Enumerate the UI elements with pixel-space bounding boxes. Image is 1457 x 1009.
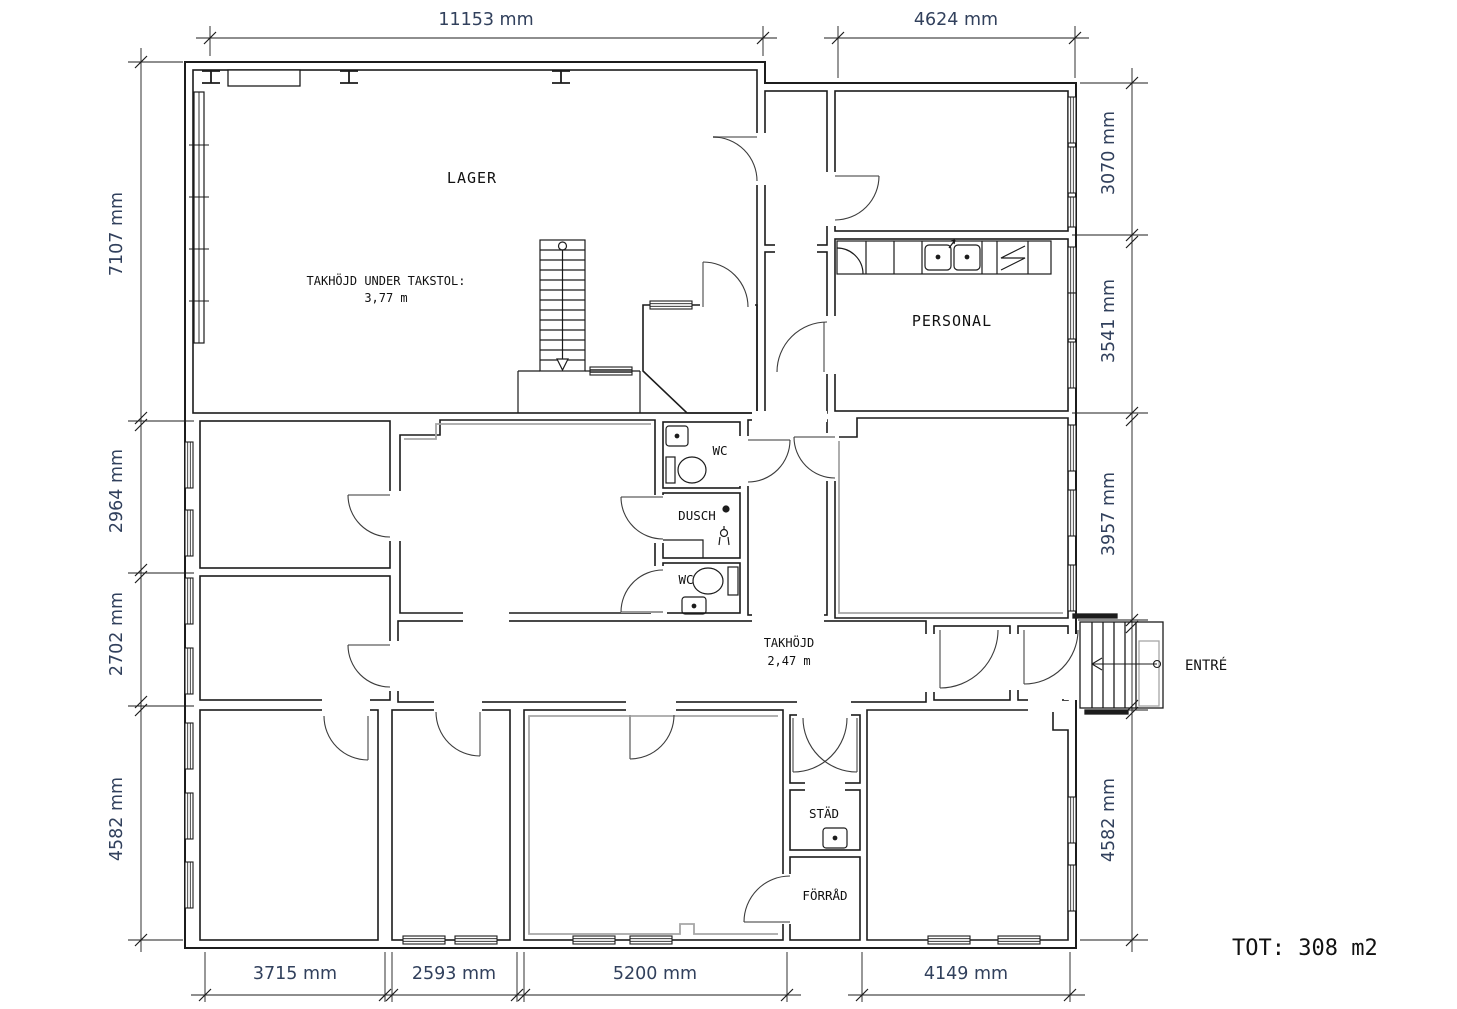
- lager-ceiling-note-line2: 3,77 m: [364, 291, 407, 305]
- dim-right-3541: 3541 mm: [1099, 279, 1119, 363]
- dim-bottom-4149: 4149 mm: [924, 964, 1008, 984]
- dim-bottom-2593: 2593 mm: [412, 964, 496, 984]
- dim-left-2964: 2964 mm: [107, 449, 127, 533]
- interior-walls: [193, 70, 1068, 940]
- wall-openings: [322, 133, 1078, 924]
- dim-left-7107: 7107 mm: [107, 192, 127, 276]
- entrance-label: ENTRÉ: [1185, 657, 1227, 674]
- toilet-tank: [728, 567, 738, 595]
- room-label-wc-top: WC: [712, 443, 727, 458]
- exterior-walls: [185, 62, 1076, 948]
- dim-left-2702: 2702 mm: [107, 592, 127, 676]
- dim-bottom-5200: 5200 mm: [613, 964, 697, 984]
- gray-finish-lines: [404, 424, 1063, 934]
- toilet-bowl: [693, 568, 723, 594]
- dim-right-3070: 3070 mm: [1099, 111, 1119, 195]
- dim-right-3957: 3957 mm: [1099, 472, 1119, 556]
- dim-top-right-block: 4624 mm: [914, 10, 998, 30]
- hall-ceiling-note-line2: 2,47 m: [767, 654, 810, 668]
- lager-ceiling-note-line1: TAKHÖJD UNDER TAKSTOL:: [307, 272, 466, 288]
- dim-bottom-3715: 3715 mm: [253, 964, 337, 984]
- wall-pier: [228, 70, 300, 86]
- dim-left-4582: 4582 mm: [107, 777, 127, 861]
- shower-head-icon: [723, 506, 729, 512]
- room-label-dusch: DUSCH: [678, 508, 716, 523]
- dimension-lines: [128, 26, 1148, 1002]
- loading-door-icon: [189, 92, 209, 343]
- room-label-personal: PERSONAL: [912, 312, 992, 330]
- floor-plan-page: 11153 mm 4624 mm 7107 mm 2964 mm 2702 mm…: [0, 0, 1457, 1005]
- stairs-icon: [518, 240, 640, 413]
- dim-top-lager: 11153 mm: [438, 10, 533, 30]
- stad-sink: [823, 828, 847, 848]
- stove-icon: [1001, 246, 1025, 270]
- room-label-lager: LAGER: [447, 169, 497, 187]
- toilet-bowl: [678, 457, 706, 483]
- total-area-label: TOT: 308 m2: [1232, 936, 1378, 961]
- windows: [185, 97, 1076, 944]
- kitchen-counter: [837, 240, 1051, 274]
- hall-ceiling-note-line1: TAKHÖJD: [764, 634, 815, 650]
- wc-top-fixtures: [666, 426, 706, 483]
- room-label-forrad: FÖRRÅD: [802, 887, 847, 903]
- dim-right-4582: 4582 mm: [1099, 778, 1119, 862]
- dimension-labels: 11153 mm 4624 mm 7107 mm 2964 mm 2702 mm…: [107, 10, 1119, 984]
- entrance-stairs: [1073, 614, 1163, 714]
- room-label-wc-bottom: WC: [678, 572, 693, 587]
- toilet-tank: [666, 457, 675, 483]
- floor-drain-icon: [721, 530, 728, 537]
- door-swings: [324, 137, 1078, 922]
- floor-plan-drawing: 11153 mm 4624 mm 7107 mm 2964 mm 2702 mm…: [0, 0, 1457, 1005]
- room-label-stad: STÄD: [809, 806, 839, 821]
